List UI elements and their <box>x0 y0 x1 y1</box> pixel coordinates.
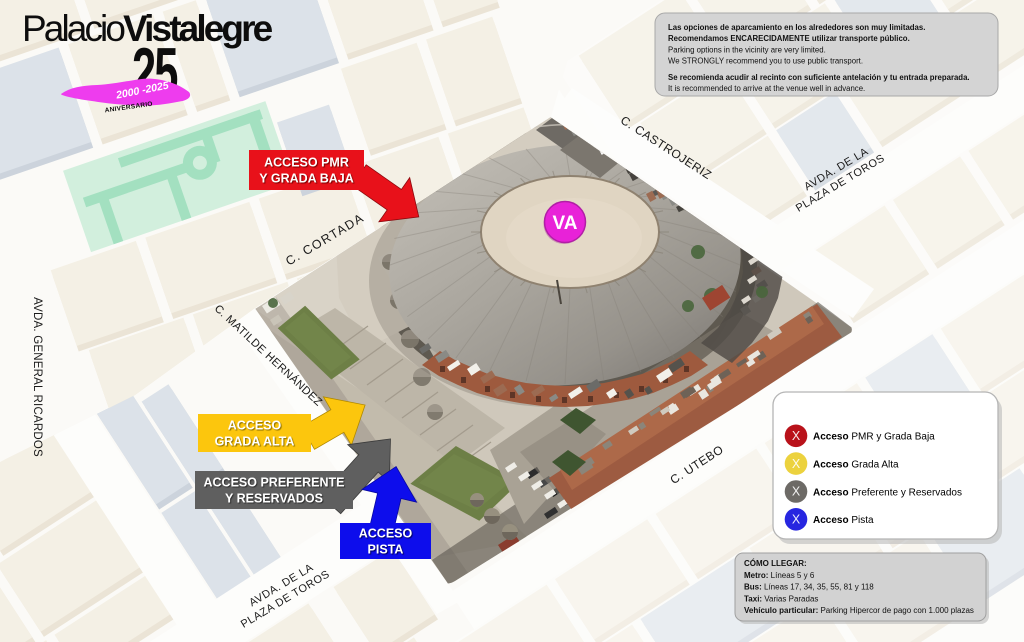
svg-text:Y RESERVADOS: Y RESERVADOS <box>225 492 323 506</box>
svg-text:X: X <box>792 429 801 443</box>
svg-text:Acceso Pista: Acceso Pista <box>813 515 874 526</box>
svg-text:It is recommended to arrive at: It is recommended to arrive at the venue… <box>668 84 865 93</box>
svg-text:Bus: Líneas 17, 34, 35, 55, 81: Bus: Líneas 17, 34, 35, 55, 81 y 118 <box>744 583 874 592</box>
svg-text:X: X <box>792 513 801 527</box>
svg-text:Acceso Grada Alta: Acceso Grada Alta <box>813 459 899 470</box>
svg-text:ACCESO: ACCESO <box>359 527 413 541</box>
svg-text:Y GRADA BAJA: Y GRADA BAJA <box>259 172 353 186</box>
svg-text:ACCESO PREFERENTE: ACCESO PREFERENTE <box>204 476 345 490</box>
svg-text:Vehículo particular: Parking H: Vehículo particular: Parking Hipercor de… <box>744 606 974 615</box>
svg-text:Acceso Preferente y Reservados: Acceso Preferente y Reservados <box>813 487 962 498</box>
svg-text:CÓMO LLEGAR:: CÓMO LLEGAR: <box>744 559 807 568</box>
svg-text:Parking options in the vicinit: Parking options in the vicinity are very… <box>668 45 826 54</box>
svg-text:PISTA: PISTA <box>368 543 404 557</box>
svg-text:ACCESO: ACCESO <box>228 419 282 433</box>
svg-text:Acceso PMR y Grada Baja: Acceso PMR y Grada Baja <box>813 432 935 443</box>
svg-text:We STRONGLY recommend you to u: We STRONGLY recommend you to use public … <box>668 57 863 66</box>
svg-text:Taxi: Varias Paradas: Taxi: Varias Paradas <box>744 594 818 603</box>
svg-text:ACCESO PMR: ACCESO PMR <box>264 156 349 170</box>
svg-text:Metro: Líneas 5 y 6: Metro: Líneas 5 y 6 <box>744 571 815 580</box>
svg-text:VA: VA <box>553 213 578 234</box>
svg-text:Recomendamos ENCARECIDAMENTE u: Recomendamos ENCARECIDAMENTE utilizar tr… <box>668 34 910 43</box>
svg-text:AVDA. GENERAL RICARDOS: AVDA. GENERAL RICARDOS <box>31 297 43 457</box>
svg-text:GRADA ALTA: GRADA ALTA <box>215 435 295 449</box>
svg-text:X: X <box>792 485 801 499</box>
svg-text:Se recomienda acudir al recint: Se recomienda acudir al recinto con sufi… <box>668 73 970 82</box>
svg-text:X: X <box>792 457 801 471</box>
svg-text:Las opciones de aparcamiento e: Las opciones de aparcamiento en los alre… <box>668 23 925 32</box>
